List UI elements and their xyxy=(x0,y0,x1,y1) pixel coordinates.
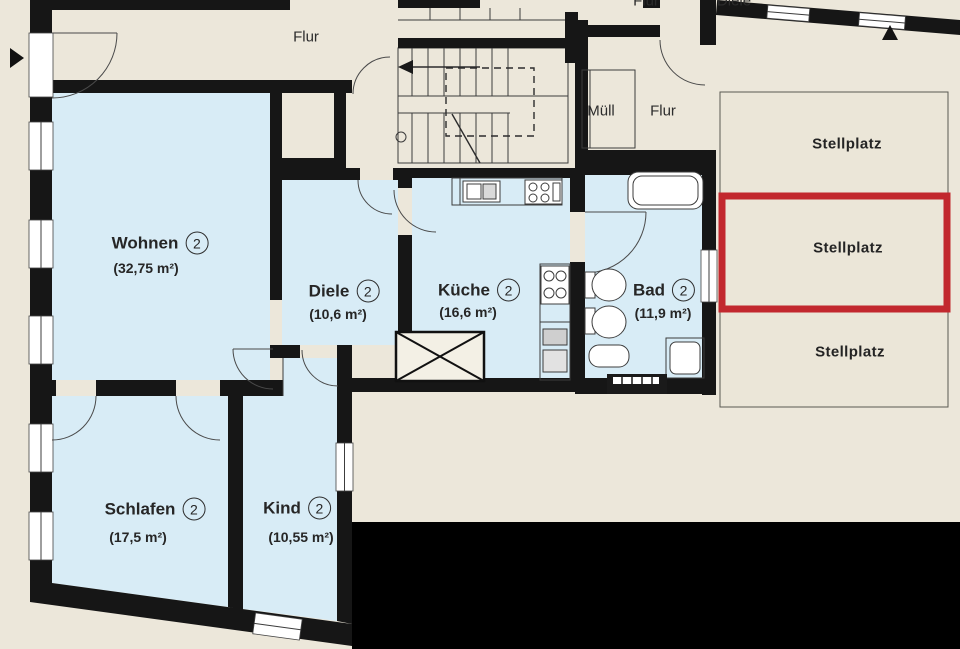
room-label-diele: Diele 2 xyxy=(309,280,380,303)
window xyxy=(29,122,53,170)
shower xyxy=(666,338,704,378)
room-name-text: Bad xyxy=(633,280,665,300)
room-label-kueche: Küche 2 xyxy=(438,279,520,302)
bath-sink xyxy=(589,345,629,367)
hall-label-muell: Müll xyxy=(587,103,615,120)
hall-label-flur-top: Flur xyxy=(633,0,659,10)
window xyxy=(29,424,53,472)
room-area-bad: (11,9 m²) xyxy=(635,305,692,321)
room-area-diele: (10,6 m²) xyxy=(309,306,367,322)
bidet xyxy=(585,306,626,338)
floor-plan-page: Flur Flur Diele Müll Flur Wohnen 2 (32,7… xyxy=(0,0,960,649)
staircase xyxy=(396,8,568,163)
hall-label-flur-stairwell: Flur xyxy=(650,103,676,120)
room-kind-floor xyxy=(243,358,337,621)
room-name-text: Schlafen xyxy=(105,499,176,519)
parking-label-2-highlighted: Stellplatz xyxy=(813,240,883,257)
room-number-badge: 2 xyxy=(308,497,331,520)
room-name-text: Kind xyxy=(263,498,301,518)
room-name-text: Küche xyxy=(438,280,490,300)
room-label-kind: Kind 2 xyxy=(263,497,331,520)
room-number-badge: 2 xyxy=(672,279,695,302)
room-area-kueche: (16,6 m²) xyxy=(439,304,497,320)
room-area-wohnen: (32,75 m²) xyxy=(113,260,178,276)
window xyxy=(29,220,53,268)
parking-label-3: Stellplatz xyxy=(815,344,885,361)
stair-direction-arrow-icon xyxy=(398,60,413,74)
room-number-badge: 2 xyxy=(497,279,520,302)
room-label-bad: Bad 2 xyxy=(633,279,695,302)
room-name-text: Wohnen xyxy=(112,233,179,253)
room-number-badge: 2 xyxy=(356,280,379,303)
room-number-badge: 2 xyxy=(182,498,205,521)
room-label-schlafen: Schlafen 2 xyxy=(105,498,206,521)
chimney-vent xyxy=(607,374,667,394)
room-name-text: Diele xyxy=(309,281,350,301)
entrance-arrow-icon xyxy=(10,48,24,68)
diagonal-exterior-wall xyxy=(716,0,960,35)
window xyxy=(336,443,353,491)
redacted-area xyxy=(352,522,960,649)
room-label-wohnen: Wohnen 2 xyxy=(112,232,209,255)
room-area-kind: (10,55 m²) xyxy=(268,529,333,545)
window xyxy=(701,250,717,302)
crossed-out-area xyxy=(396,332,484,381)
door-arc xyxy=(660,40,705,85)
room-number-badge: 2 xyxy=(185,232,208,255)
stove xyxy=(525,180,562,204)
room-area-schlafen: (17,5 m²) xyxy=(109,529,167,545)
window xyxy=(29,512,53,560)
kitchen-sink xyxy=(463,181,500,202)
window xyxy=(29,316,53,364)
bathtub xyxy=(628,172,703,209)
kitchen-side-counter xyxy=(540,264,570,380)
floor-plan-drawing xyxy=(0,0,960,649)
hall-label-diele-top: Diele xyxy=(717,0,751,10)
toilet xyxy=(585,269,626,301)
parking-label-1: Stellplatz xyxy=(812,136,882,153)
door-arc xyxy=(353,57,390,94)
hall-label-flur: Flur xyxy=(293,29,319,46)
entrance-doorway xyxy=(29,33,53,97)
cooktop xyxy=(541,266,569,304)
